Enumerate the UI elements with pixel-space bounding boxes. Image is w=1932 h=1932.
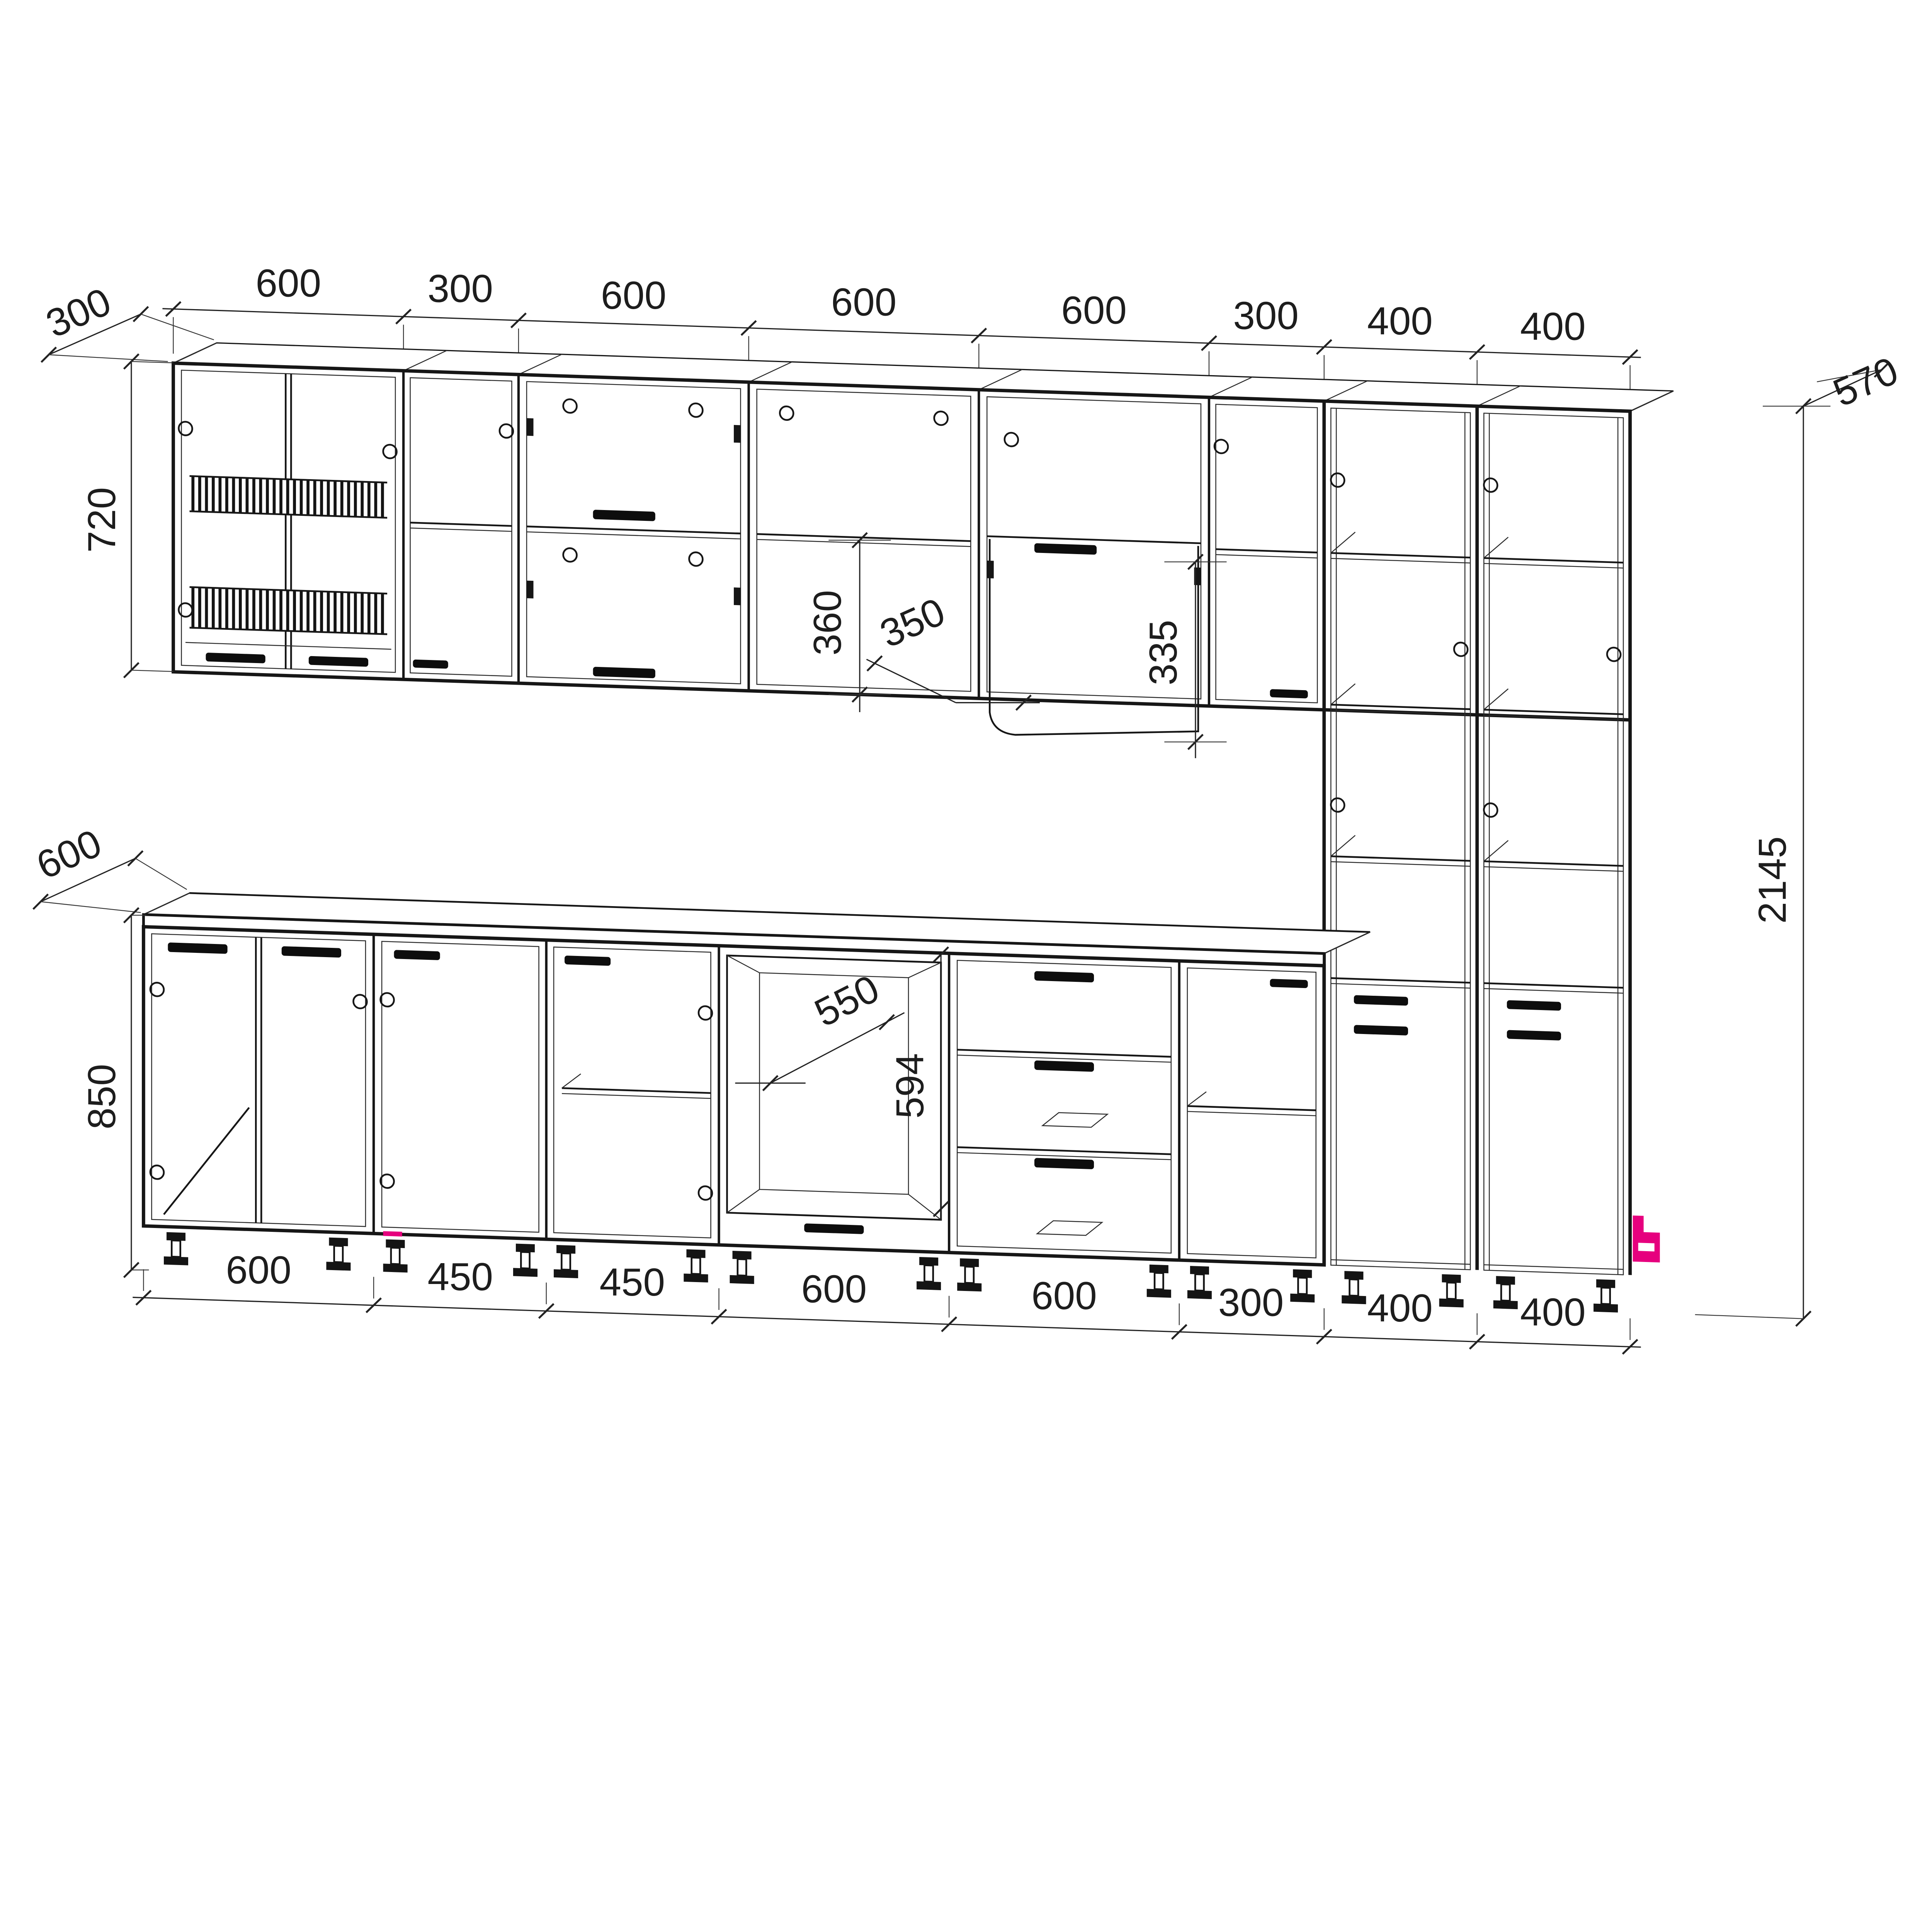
base-cabinet-row [143, 927, 1618, 1312]
dim-label: 600 [256, 261, 321, 305]
dim-oven-height [934, 947, 949, 1219]
drawing-canvas: 600 300 600 600 600 300 400 400 600 450 … [0, 0, 1932, 1582]
door-handle [206, 653, 265, 663]
dim-label-tall-depth: 570 [1827, 348, 1904, 415]
drawer-handle [804, 1223, 864, 1234]
dim-label-oven-height: 594 [888, 1053, 932, 1119]
door-handle [1270, 979, 1308, 988]
flip-door-handle [593, 510, 655, 521]
dim-label-base-height: 850 [80, 1064, 124, 1129]
base-door-shelf-450 [554, 947, 712, 1238]
kitchen-cabinet-drawing: 600 300 600 600 600 300 400 400 600 450 … [0, 0, 1932, 1582]
base-door-450 [381, 941, 539, 1232]
dim-label: 300 [428, 266, 493, 310]
dim-label: 400 [1520, 304, 1586, 348]
dim-wall-clearance [866, 656, 1039, 710]
cabinet-linework [133, 300, 1673, 1355]
dim-label: 600 [831, 280, 897, 324]
dim-label: 450 [428, 1255, 493, 1299]
flip-door-handle [593, 667, 655, 678]
drawer-base-three-drawers-600 [957, 960, 1171, 1253]
wall-cabinet-300-b [1214, 404, 1317, 703]
dim-label: 300 [1233, 293, 1299, 337]
wall-cabinet-two-flip-doors-600 [527, 382, 741, 684]
wall-cabinet-dish-rack-600 [179, 370, 397, 672]
tall-door-handle [1507, 1030, 1561, 1040]
wall-cabinet-flip-door-600 [987, 397, 1201, 741]
tall-door-handle [1354, 995, 1408, 1005]
dim-label-base-depth: 600 [30, 821, 108, 888]
dim-label: 300 [1218, 1281, 1284, 1325]
drawer-handle [1034, 1158, 1094, 1170]
pink-marker-tall-corner [1633, 1216, 1660, 1262]
dim-wall-height [124, 354, 173, 677]
door-handle [394, 950, 440, 960]
wall-cabinet-300 [410, 378, 513, 677]
dim-label: 400 [1367, 1286, 1433, 1330]
door-handle [1270, 689, 1308, 698]
dim-label: 600 [801, 1267, 867, 1311]
door-handle [168, 942, 227, 954]
door-handle [309, 656, 368, 667]
dim-label: 400 [1367, 299, 1433, 343]
tall-door-handle [1354, 1025, 1408, 1035]
dim-label-flip-door: 335 [1141, 620, 1185, 685]
dim-label-wall-height: 720 [80, 487, 124, 553]
tall-cabinets [1324, 401, 1630, 1275]
dim-oven-depth [735, 1013, 905, 1090]
dim-label: 600 [1061, 288, 1127, 332]
dim-label-wall-depth: 300 [39, 279, 117, 346]
dim-label: 600 [1031, 1274, 1097, 1318]
dim-label: 400 [1520, 1290, 1586, 1334]
drawer-handle [1034, 971, 1094, 983]
door-handle [565, 956, 611, 966]
wall-cabinet-row [173, 363, 1630, 755]
door-handle [413, 660, 448, 669]
dim-label: 600 [226, 1248, 291, 1292]
sink-base-two-doors-600 [150, 934, 367, 1226]
door-handle [282, 946, 341, 958]
tall-door-handle [1507, 1000, 1561, 1010]
wall-row-top-face [173, 342, 1673, 413]
flip-door-handle [1034, 543, 1097, 555]
hinge-icon [179, 422, 192, 435]
pink-marker-plinth [383, 1231, 402, 1236]
base-open-shelf-300 [1187, 968, 1316, 1258]
drawer-handle [1034, 1060, 1094, 1072]
dim-label-tall-height: 2145 [1750, 836, 1794, 923]
dim-label: 600 [601, 273, 667, 317]
dim-label-open-lower: 360 [805, 590, 849, 656]
dim-label: 450 [600, 1260, 665, 1304]
dim-label-clearance: 350 [874, 589, 951, 656]
